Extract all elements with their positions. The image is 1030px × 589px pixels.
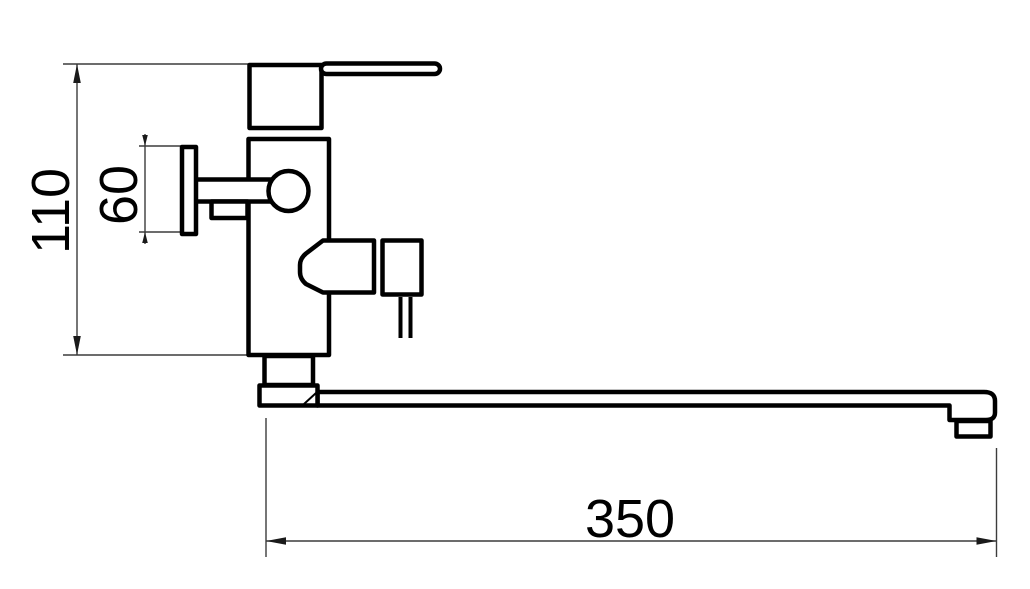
diverter-bullet xyxy=(300,241,374,293)
arrowhead-up-icon xyxy=(73,64,81,83)
dimension-label-height: 110 xyxy=(21,168,81,254)
faucet-outline-group xyxy=(182,64,995,437)
arrowhead-down-icon xyxy=(73,336,81,355)
aerator-nozzle xyxy=(957,421,991,437)
faucet-technical-drawing: 110 60 350 xyxy=(0,0,1030,589)
wall-flange xyxy=(182,147,196,234)
wall-connection-pipe xyxy=(195,180,271,202)
arrowhead-right-icon xyxy=(977,537,997,544)
spout-nut xyxy=(265,356,314,385)
spout-base xyxy=(260,386,318,406)
hose-connector-block xyxy=(383,241,422,295)
connector-circle xyxy=(269,171,309,211)
lever-handle xyxy=(321,64,440,75)
cartridge-cap xyxy=(250,65,322,128)
arrowhead-left-icon xyxy=(266,537,286,544)
pipe-bracket xyxy=(212,202,248,219)
spout-tube xyxy=(318,392,996,420)
arrowhead-up-icon xyxy=(142,232,148,243)
dimension-label-flange: 60 xyxy=(89,165,149,225)
dimension-label-spout: 350 xyxy=(585,489,675,549)
dimension-60-group: 60 xyxy=(89,134,183,244)
drawing-canvas: 110 60 350 xyxy=(0,0,1030,589)
arrowhead-down-icon xyxy=(142,135,148,146)
dimension-350-group: 350 xyxy=(266,418,997,557)
